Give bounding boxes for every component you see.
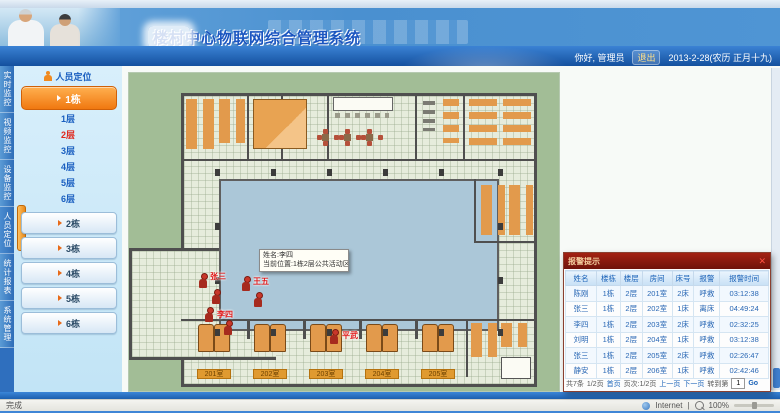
pagination-page: 1/2页 <box>587 379 604 389</box>
furniture-chairs <box>317 129 334 146</box>
table-row[interactable]: 李四1栋2层203室2床呼救02:32:25 <box>566 317 769 333</box>
furniture-tables <box>333 97 393 111</box>
wall <box>247 319 250 339</box>
person-marker[interactable] <box>211 289 221 304</box>
nav-tab-device-monitor[interactable]: 设备监控 <box>0 160 14 207</box>
zoom-level: 100% <box>709 401 729 410</box>
status-divider: | <box>687 401 689 410</box>
sidebar: 人员定位 1栋 1层 2层 3层 4层 5层 6层 2栋 3栋 4栋 5栋 6栋 <box>14 66 123 392</box>
tooltip-name: 姓名:李四 <box>263 252 345 261</box>
furniture-beds <box>509 185 533 235</box>
date-text: 2013-2-28(农历 正月十九) <box>668 51 772 64</box>
person-marker-label: 李四 <box>217 309 233 320</box>
arrow-icon <box>57 95 61 101</box>
browser-status-bar: 完成 Internet | 100% <box>0 399 780 411</box>
person-marker-label: 王五 <box>253 276 269 287</box>
building-1-button[interactable]: 1栋 <box>21 86 117 110</box>
pagination-total: 共7条 <box>566 379 584 389</box>
furniture-desks <box>469 99 497 151</box>
scrollbar-thumb[interactable] <box>773 368 780 388</box>
floor-plan-map[interactable]: 201室 202室 203室 204室 205室 张三 王五 李四 平武 姓名:… <box>128 72 560 392</box>
room-label: 201室 <box>197 369 231 379</box>
arrow-icon <box>58 320 62 326</box>
furniture-beds <box>481 185 505 235</box>
wall <box>327 93 329 159</box>
alarm-table: 姓名 楼栋 楼层 房间 床号 报警 报警时间 陈刚1栋2层201室2床呼救03:… <box>565 270 769 379</box>
furniture-beds <box>186 99 214 149</box>
furniture-beds <box>501 323 527 347</box>
building-6-button[interactable]: 6栋 <box>21 312 117 334</box>
wall <box>466 319 468 377</box>
furniture-beds <box>219 99 245 143</box>
room-label: 202室 <box>253 369 287 379</box>
room-label: 204室 <box>365 369 399 379</box>
topbar: 你好, 管理员 退出 2013-2-28(农历 正月十九) <box>0 46 780 67</box>
floor-item-6[interactable]: 6层 <box>14 192 122 208</box>
banner-photo-woman <box>50 24 80 46</box>
wall <box>474 241 537 243</box>
floor-item-1[interactable]: 1层 <box>14 112 122 128</box>
person-marker[interactable] <box>204 307 214 322</box>
pagination-page-input[interactable] <box>731 378 745 389</box>
greeting-text: 你好, 管理员 <box>574 51 624 64</box>
person-marker[interactable] <box>253 292 263 307</box>
furniture-bed-pair <box>253 323 287 353</box>
furniture-shelves <box>423 101 435 131</box>
alarm-table-header: 姓名 楼栋 楼层 房间 床号 报警 报警时间 <box>566 271 769 286</box>
room-label: 205室 <box>421 369 455 379</box>
room-label: 203室 <box>309 369 343 379</box>
topbar-decoration <box>400 46 570 66</box>
zoom-slider[interactable] <box>734 404 774 407</box>
floor-item-2-active[interactable]: 2层 <box>14 128 122 144</box>
arrow-icon <box>58 270 62 276</box>
sidebar-header: 人员定位 <box>14 68 122 84</box>
status-right-group: Internet | 100% <box>642 401 774 410</box>
wall <box>359 319 362 339</box>
furniture-chairs <box>361 129 378 146</box>
arrow-icon <box>58 295 62 301</box>
nav-tab-system-admin[interactable]: 系统管理 <box>0 301 14 348</box>
floor-item-3[interactable]: 3层 <box>14 144 122 160</box>
location-tooltip: 姓名:李四 当前位置:1栋2层公共活动区 <box>259 249 349 272</box>
furniture-desks <box>503 99 531 151</box>
person-marker[interactable] <box>329 329 339 344</box>
alarm-popup-titlebar[interactable]: 报警提示 ✕ <box>564 253 770 269</box>
person-marker[interactable] <box>198 273 208 288</box>
furniture-bed-pair <box>365 323 399 353</box>
banner: 楼村中心物联网综合管理系统 <box>0 8 780 46</box>
wall <box>415 93 417 159</box>
magnifier-icon <box>695 401 704 410</box>
floor-item-4[interactable]: 4层 <box>14 160 122 176</box>
column-dots <box>215 169 220 176</box>
wall <box>303 319 306 339</box>
floor-item-5[interactable]: 5层 <box>14 176 122 192</box>
furniture-chairs <box>339 129 356 146</box>
table-row[interactable]: 陈刚1栋2层201室2床呼救03:12:38 <box>566 286 769 302</box>
furniture-desks <box>443 99 459 143</box>
furniture-bed-pair <box>421 323 455 353</box>
status-left-text: 完成 <box>6 400 22 411</box>
vertical-nav: 实时监控 视频监控 设备监控 人员定位 统计报表 系统管理 <box>0 66 14 392</box>
banner-photo-man <box>8 20 44 46</box>
nav-tab-realtime-monitor[interactable]: 实时监控 <box>0 66 14 113</box>
pagination-next[interactable]: 下一页 <box>683 379 704 389</box>
pagination-first[interactable]: 首页 <box>607 379 621 389</box>
person-icon <box>44 71 52 81</box>
globe-icon <box>642 402 650 410</box>
furniture-seats <box>335 113 389 118</box>
wall <box>181 159 537 161</box>
pagination-goto-label: 转到第 <box>707 379 728 389</box>
table-row[interactable]: 张三1栋2层202室1床离床04:49:24 <box>566 301 769 317</box>
building-5-button[interactable]: 5栋 <box>21 287 117 309</box>
pagination-go-button[interactable]: Go <box>748 380 758 387</box>
logout-button[interactable]: 退出 <box>632 50 660 65</box>
close-icon[interactable]: ✕ <box>758 257 766 266</box>
network-zone-label: Internet <box>655 401 682 410</box>
utility-room <box>501 357 531 379</box>
person-marker[interactable] <box>223 320 233 335</box>
arrow-icon <box>58 245 62 251</box>
nav-tab-video-monitor[interactable]: 视频监控 <box>0 113 14 160</box>
wall <box>415 319 418 339</box>
alarm-popup: 报警提示 ✕ 姓名 楼栋 楼层 房间 床号 报警 报警时间 陈刚1栋2层201室… <box>563 252 771 392</box>
wall <box>474 179 476 243</box>
pagination-prev[interactable]: 上一页 <box>659 379 680 389</box>
tooltip-position: 当前位置:1栋2层公共活动区 <box>263 261 345 270</box>
furniture-beds <box>471 323 497 357</box>
building-4-button[interactable]: 4栋 <box>21 262 117 284</box>
person-marker[interactable] <box>241 276 251 291</box>
banner-photo-fade <box>78 8 124 46</box>
pagination-info: 页次:1/2页 <box>624 379 657 389</box>
wall <box>247 93 249 159</box>
nav-tab-statistics[interactable]: 统计报表 <box>0 254 14 301</box>
right-scrollbar[interactable] <box>771 68 780 390</box>
building-3-button[interactable]: 3栋 <box>21 237 117 259</box>
alarm-popup-title: 报警提示 <box>568 256 600 267</box>
person-marker-label: 平武 <box>342 330 358 341</box>
pagination-bar: 共7条 1/2页 首页 页次:1/2页 上一页 下一页 转到第 Go <box>566 377 770 390</box>
table-row[interactable]: 刘明1栋2层204室1床呼救03:12:38 <box>566 332 769 348</box>
app-footer-bar <box>0 392 780 399</box>
user-info: 你好, 管理员 退出 2013-2-28(农历 正月十九) <box>574 50 772 65</box>
arrow-icon <box>58 220 62 226</box>
wall <box>463 93 465 159</box>
furniture-room <box>253 99 307 149</box>
sidebar-header-label: 人员定位 <box>55 70 91 83</box>
person-marker-label: 张三 <box>210 271 226 282</box>
building-2-button[interactable]: 2栋 <box>21 212 117 234</box>
title-blur-patch <box>148 26 190 46</box>
table-row[interactable]: 张三1栋2层205室2床呼救02:26:47 <box>566 348 769 364</box>
